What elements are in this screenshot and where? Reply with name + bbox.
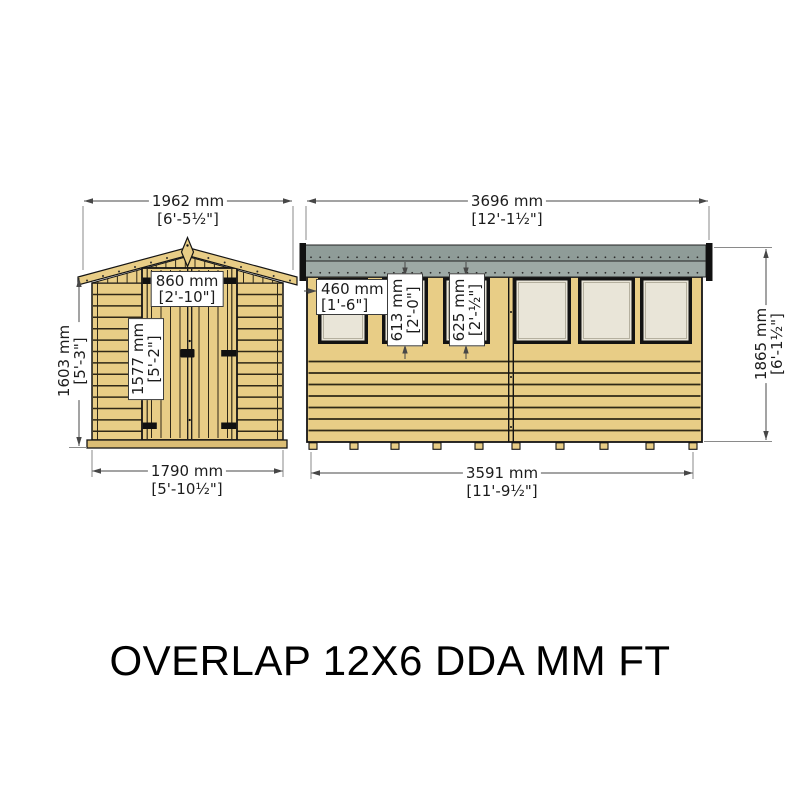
dim-window-width: 460 mm[1'-6"] bbox=[316, 279, 389, 315]
barge-board-left bbox=[300, 243, 307, 281]
dim-base-width-ftin: [5'-10½"] bbox=[148, 481, 225, 497]
dim-base-width-mm: 1790 mm bbox=[148, 463, 226, 479]
dim-window2-height: 613 mm[2'-0"] bbox=[387, 274, 423, 347]
dim-roof-width-mm: 1962 mm bbox=[149, 193, 227, 209]
front-base bbox=[87, 440, 287, 448]
dim-door-height: 1577 mm[5'-2"] bbox=[128, 318, 164, 400]
window bbox=[578, 277, 635, 344]
drawing-title: OVERLAP 12X6 DDA MM FT bbox=[0, 636, 780, 686]
dim-wall-height: 1603 mm[5'-3"] bbox=[56, 322, 88, 400]
end-elevation bbox=[78, 238, 297, 449]
shed-technical-drawing: 1962 mm [6'-5½"] 1603 mm[5'-3"] 860 mm[2… bbox=[0, 0, 800, 800]
dim-door-width: 860 mm[2'-10"] bbox=[151, 271, 224, 307]
dim-window3-height: 625 mm[2'-½"] bbox=[449, 274, 485, 347]
dim-roof-length-mm: 3696 mm bbox=[468, 193, 546, 209]
side-elevation bbox=[300, 243, 713, 449]
roof-felt-upper bbox=[304, 245, 706, 261]
dim-base-length-ftin: [11'-9½"] bbox=[463, 483, 540, 499]
dim-roof-length-ftin: [12'-1½"] bbox=[468, 211, 545, 227]
door-hinge bbox=[221, 350, 236, 357]
door-hinge bbox=[143, 423, 157, 430]
door-hinge bbox=[221, 423, 236, 430]
finial-dot bbox=[186, 244, 188, 246]
barge-board-right bbox=[706, 243, 713, 281]
dim-overall-height: 1865 mm[6'-1½"] bbox=[753, 305, 785, 383]
window bbox=[513, 277, 571, 344]
dim-roof-width-ftin: [6'-5½"] bbox=[154, 211, 222, 227]
roof-felt-lower bbox=[304, 261, 706, 277]
floor-bearers bbox=[309, 443, 697, 450]
dim-base-length-mm: 3591 mm bbox=[463, 465, 541, 481]
door-lock bbox=[181, 349, 195, 358]
window bbox=[640, 277, 692, 344]
